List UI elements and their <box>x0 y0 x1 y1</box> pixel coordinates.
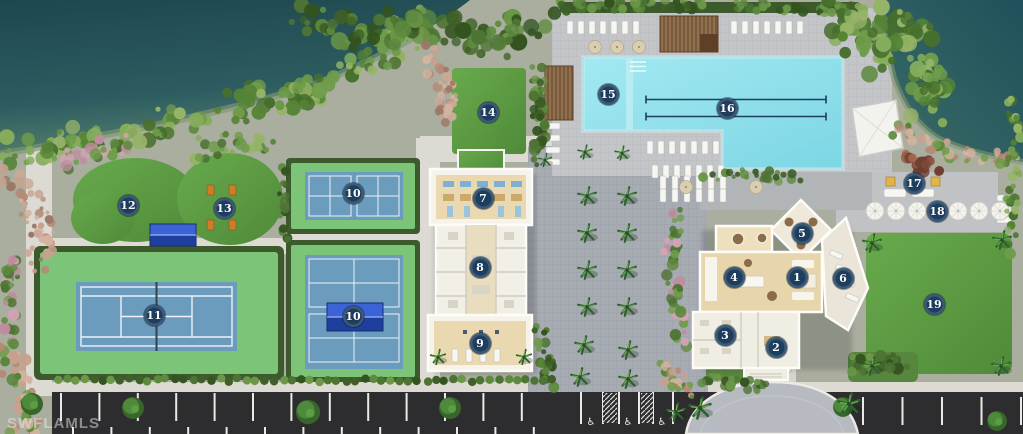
site-marker-15: 15 <box>598 84 619 105</box>
site-marker-14: 14 <box>478 102 499 123</box>
site-marker-17: 17 <box>904 173 925 194</box>
site-marker-10: 10 <box>343 306 364 327</box>
site-marker-9: 9 <box>470 333 491 354</box>
site-marker-11: 11 <box>144 305 165 326</box>
site-marker-1: 1 <box>787 267 808 288</box>
site-marker-4: 4 <box>724 267 745 288</box>
site-marker-16: 16 <box>717 98 738 119</box>
site-marker-6: 6 <box>833 268 854 289</box>
site-plan: ♿♿♿ <box>0 0 1023 434</box>
site-marker-2: 2 <box>766 337 787 358</box>
site-marker-3: 3 <box>715 325 736 346</box>
site-marker-5: 5 <box>792 223 813 244</box>
site-marker-8: 8 <box>470 257 491 278</box>
site-marker-12: 12 <box>118 195 139 216</box>
site-marker-10: 10 <box>343 183 364 204</box>
site-marker-18: 18 <box>927 201 948 222</box>
site-marker-13: 13 <box>214 198 235 219</box>
watermark: SWFLAMLS <box>7 415 100 432</box>
markers-layer: 1234567891010111213141516171819 <box>0 0 1023 434</box>
site-marker-7: 7 <box>473 188 494 209</box>
site-marker-19: 19 <box>924 294 945 315</box>
